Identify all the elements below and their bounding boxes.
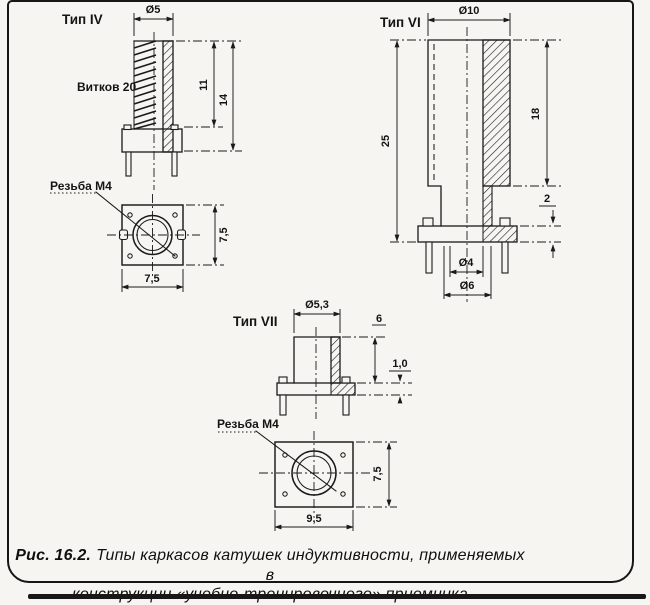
- type-vi-h25-value: 25: [380, 135, 392, 147]
- type-iv-plate-h-value: 7,5: [218, 227, 230, 242]
- type-iv-title: Тип IV: [62, 12, 103, 27]
- height-extension-lines: [176, 41, 242, 151]
- caption-figure-number: Рис. 16.2.: [15, 547, 91, 564]
- type-vii-flange-value: 1,0: [392, 358, 407, 370]
- type-vii-title: Тип VII: [233, 314, 277, 329]
- type-iv-side-view: Тип IV Витков 20 Ø5 11 14: [62, 4, 242, 190]
- type-vi-flange-value: 2: [544, 193, 550, 205]
- dia-extension-lines: [134, 13, 173, 36]
- pin-left: [426, 242, 432, 273]
- tube-wall-hatched: [163, 41, 173, 152]
- flange-hatched-part: [483, 226, 517, 242]
- pin-tab-left: [423, 218, 433, 226]
- scanned-book-page: Тип IV Витков 20 Ø5 11 14: [0, 0, 650, 605]
- type-vii-h6-value: 6: [376, 313, 382, 325]
- type-iv-h14-value: 14: [218, 93, 230, 106]
- type-vii-bottom-view: Резьба М4 7,5 9,5: [217, 417, 397, 531]
- technical-drawing: Тип IV Витков 20 Ø5 11 14: [0, 0, 650, 605]
- type-vi-title: Тип VI: [380, 15, 421, 30]
- type-iv-dia-value: Ø5: [146, 4, 161, 16]
- corner-hole: [128, 213, 132, 217]
- type-vii-plate-h-value: 7,5: [372, 466, 384, 481]
- h25-extensions: [390, 40, 426, 242]
- flange-extensions: [520, 226, 561, 242]
- type-vii-side-view: Тип VII Ø5,3 6 1,0: [233, 299, 412, 419]
- pin-tab-right: [500, 218, 510, 226]
- pin-left: [280, 395, 286, 415]
- type-iv-h11-value: 11: [198, 79, 210, 91]
- type-iv-bottom-view: Резьба М4 7,5 7,5: [50, 179, 230, 292]
- base-tab-left: [124, 125, 131, 130]
- base-tab-right: [171, 125, 178, 130]
- pin-left: [126, 152, 131, 176]
- type-vi-d6-value: Ø6: [460, 280, 475, 292]
- pin-right: [343, 395, 349, 415]
- type-vii-plate-w-value: 9,5: [306, 513, 321, 525]
- corner-hole: [341, 453, 345, 457]
- type-vi-h18-value: 18: [530, 108, 542, 120]
- flange-hatched-part: [331, 383, 355, 395]
- type-vii-dia-value: Ø5,3: [305, 299, 329, 311]
- coil-winding: [134, 41, 156, 129]
- type-iv-plate-w-value: 7,5: [144, 273, 159, 285]
- tube-wall-hatched: [331, 337, 340, 383]
- pin-tab-left: [279, 377, 287, 383]
- tube-wall-hatched: [483, 40, 510, 186]
- caption-line-1: Рис. 16.2.Типы каркасов катушек индуктив…: [10, 546, 530, 585]
- corner-hole: [173, 213, 177, 217]
- dia-extension-lines: [294, 309, 340, 333]
- corner-hole: [128, 254, 132, 258]
- stem-wall-hatched: [483, 186, 492, 226]
- type-vii-thread-label: Резьба М4: [217, 417, 279, 431]
- type-vi-side-view: Тип VI Ø10 18 2: [380, 5, 562, 302]
- type-iv-thread-label: Резьба М4: [50, 179, 112, 193]
- pin-right: [502, 242, 508, 273]
- pin-right: [172, 152, 177, 176]
- caption-text-1: Типы каркасов катушек индуктивности, при…: [96, 547, 525, 584]
- corner-hole: [283, 492, 287, 496]
- type-iv-turns-label: Витков 20: [77, 80, 136, 94]
- page-edge-scan-line: [28, 594, 646, 599]
- type-vi-d4-value: Ø4: [459, 257, 475, 269]
- corner-hole: [283, 453, 287, 457]
- pin-tab-right: [342, 377, 350, 383]
- type-vi-dia-value: Ø10: [459, 5, 480, 17]
- corner-hole: [341, 492, 345, 496]
